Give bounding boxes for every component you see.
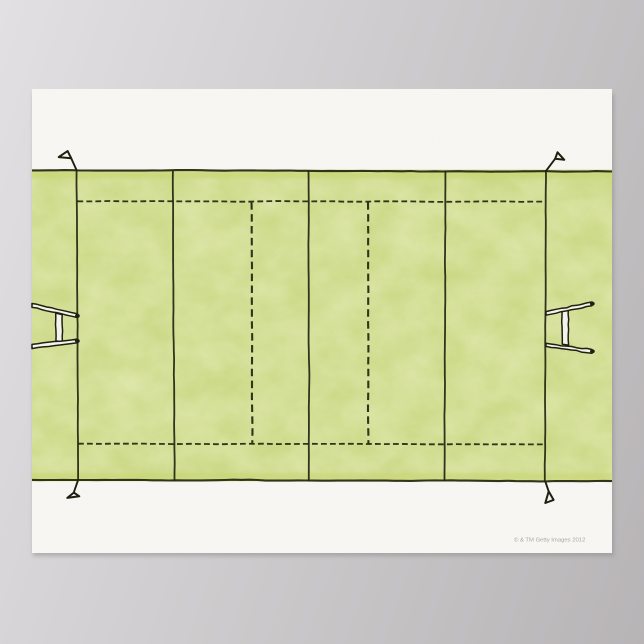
svg-text:© & TM Getty Images 2012: © & TM Getty Images 2012 <box>514 536 585 543</box>
